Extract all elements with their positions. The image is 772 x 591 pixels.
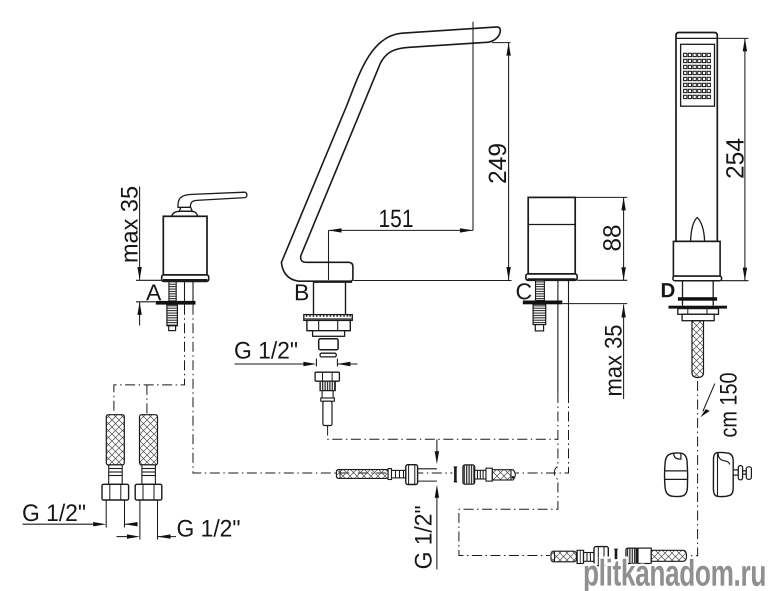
svg-text:G 1/2": G 1/2" bbox=[234, 338, 298, 365]
svg-text:cm 150: cm 150 bbox=[716, 373, 743, 438]
svg-text:151: 151 bbox=[378, 205, 413, 233]
svg-text:B: B bbox=[294, 279, 309, 305]
svg-text:249: 249 bbox=[484, 143, 512, 184]
svg-text:G 1/2": G 1/2" bbox=[176, 516, 240, 543]
svg-text:88: 88 bbox=[599, 225, 627, 252]
svg-text:G 1/2": G 1/2" bbox=[22, 500, 86, 527]
svg-text:plitkanadom.ru: plitkanadom.ru bbox=[583, 553, 766, 591]
svg-text:C: C bbox=[515, 278, 532, 304]
svg-text:A: A bbox=[146, 279, 162, 305]
svg-text:G 1/2": G 1/2" bbox=[411, 505, 438, 569]
svg-text:D: D bbox=[660, 279, 675, 302]
